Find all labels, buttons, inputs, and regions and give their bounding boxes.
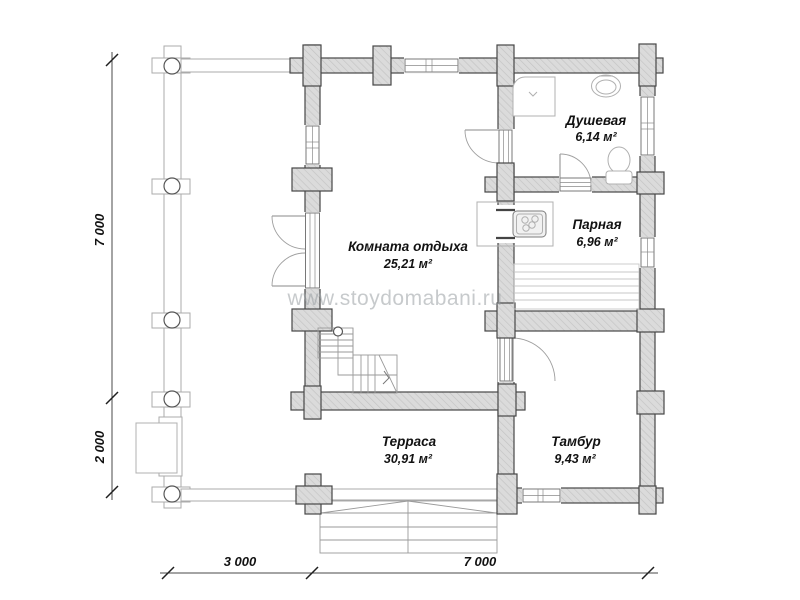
log-joint [497, 45, 514, 86]
room-label-terrace: Терраса [382, 434, 437, 449]
log-joint [303, 45, 321, 86]
log-joint [497, 163, 514, 201]
stove-icon [477, 202, 553, 246]
dimension-bottom: 3 000 7 000 [160, 554, 658, 579]
shower-tray-icon [513, 77, 555, 116]
staircase-icon [318, 327, 397, 393]
room-label-vestibule: Тамбур [551, 434, 601, 449]
log-end [164, 178, 180, 194]
sink-icon [592, 75, 621, 97]
window-east-shower [639, 96, 656, 156]
room-area-shower: 6,14 м² [575, 130, 617, 144]
log-end [164, 58, 180, 74]
door-shower-steam [559, 154, 592, 193]
floor-plan-page: 7 000 2 000 3 000 7 000 Душевая 6,14 м² … [0, 0, 800, 600]
wall-north [290, 58, 663, 73]
bench-icon [136, 423, 177, 473]
log-joint [292, 168, 332, 191]
dim-left-terrace: 2 000 [92, 430, 107, 464]
bottom-beam [181, 489, 497, 501]
log-joint [637, 309, 664, 332]
dim-bottom-main: 7 000 [464, 554, 497, 569]
top-beam [181, 59, 305, 72]
window-vestibule-south [522, 487, 561, 504]
wall-interior-vertical [498, 58, 514, 513]
toilet-icon [606, 147, 632, 184]
room-area-lounge: 25,21 м² [383, 257, 433, 271]
door-shower-west [465, 129, 515, 164]
log-joint [639, 44, 656, 86]
room-area-terrace: 30,91 м² [384, 452, 433, 466]
log-end [164, 486, 180, 502]
log-joint [304, 386, 321, 419]
wall-lounge-south [291, 392, 525, 410]
window-north [404, 57, 459, 74]
dim-left-main: 7 000 [92, 213, 107, 246]
log-joint [498, 384, 516, 416]
log-joint [497, 474, 517, 514]
log-joint [639, 486, 656, 514]
door-vestibule [498, 337, 555, 382]
watermark: www.stoydomabani.ru [287, 287, 503, 310]
dim-bottom-terrace: 3 000 [224, 554, 257, 569]
log-end [164, 312, 180, 328]
window-west [304, 125, 321, 165]
log-end [164, 391, 180, 407]
double-door-west [272, 212, 321, 289]
dimension-left: 7 000 2 000 [92, 52, 118, 500]
room-area-vestibule: 9,43 м² [554, 452, 596, 466]
log-joint [637, 172, 664, 194]
window-east-steam [639, 237, 656, 268]
room-area-steam: 6,96 м² [576, 235, 618, 249]
log-joint [637, 391, 664, 414]
room-label-shower: Душевая [565, 113, 627, 128]
room-label-lounge: Комната отдыха [348, 239, 468, 254]
log-joint [373, 46, 391, 85]
room-label-steam: Парная [572, 217, 621, 232]
floor-plan-drawing: 7 000 2 000 3 000 7 000 Душевая 6,14 м² … [0, 0, 800, 600]
log-joint [296, 486, 332, 504]
sauna-benches-icon [514, 264, 639, 309]
porch-steps-icon [320, 500, 497, 553]
